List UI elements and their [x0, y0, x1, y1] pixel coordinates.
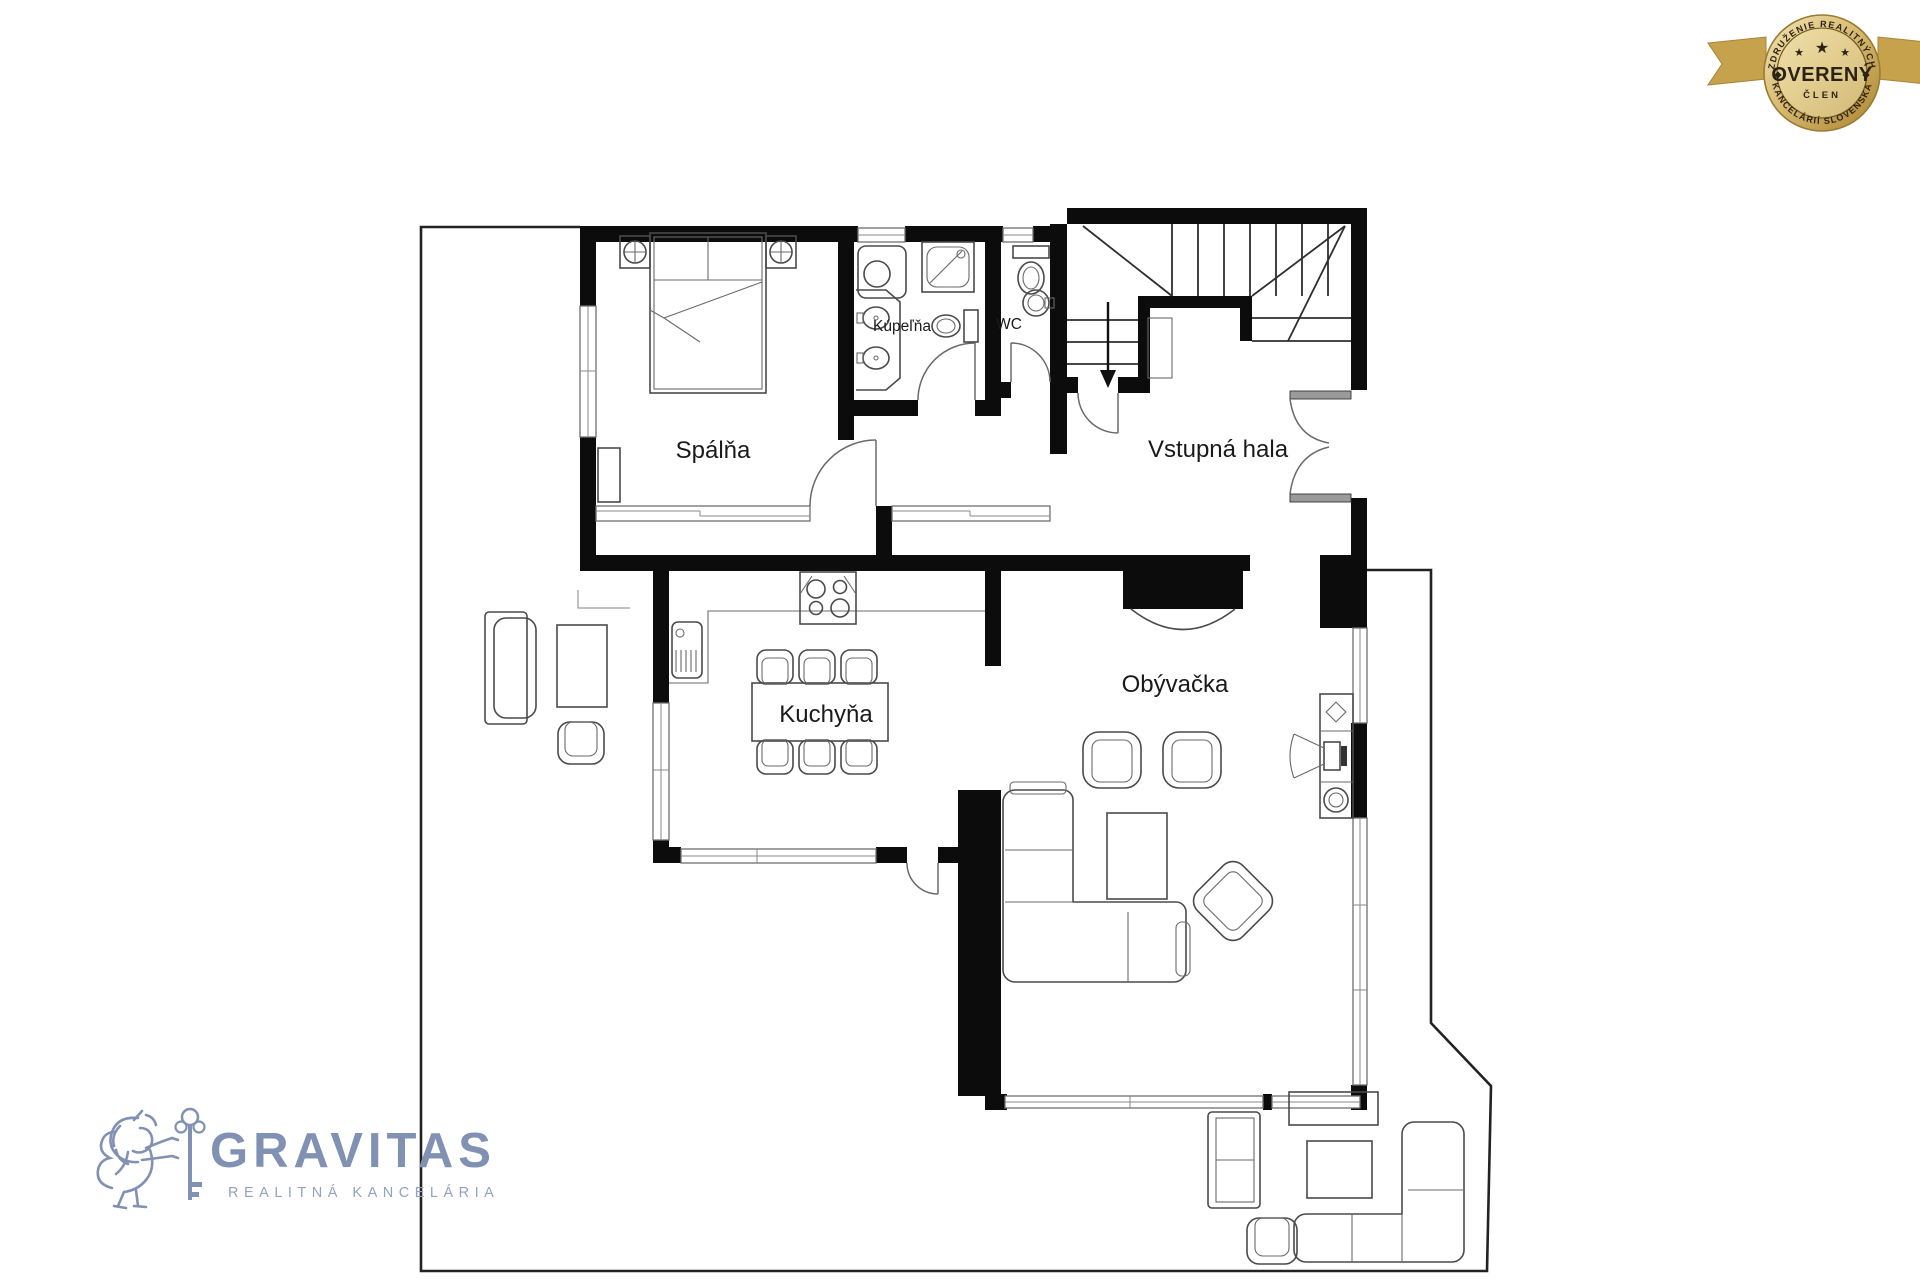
tv: [1290, 734, 1347, 778]
vanity-double-sink: [856, 290, 900, 390]
fireplace-hearth: [1131, 609, 1235, 630]
bedroom-window: [580, 306, 596, 437]
shower: [922, 242, 974, 292]
lion-icon: [98, 1111, 178, 1208]
stair-treads: [1067, 224, 1351, 364]
terrace-corner-sofa: [1294, 1122, 1464, 1262]
bedroom-door: [810, 440, 876, 506]
kitchen-sink: [672, 622, 702, 678]
badge-subtitle: ČLEN: [1803, 89, 1841, 101]
gravitas-logo: GRAVITAS REALITNÁ KANCELÁRIA: [98, 1109, 500, 1208]
kitchen-terrace-door: [907, 863, 938, 894]
wc-window: [1003, 228, 1033, 242]
svg-text:★: ★: [1794, 47, 1804, 59]
logo-brand-text: GRAVITAS: [210, 1124, 496, 1178]
bedroom-cabinet: [598, 448, 620, 502]
bathroom-window: [858, 228, 905, 242]
floor-plan-canvas: Spálňa Kúpeľňa WC Vstupná hala Kuchyňa O…: [0, 0, 1920, 1280]
room-labels: Spálňa Kúpeľňa WC Vstupná hala Kuchyňa O…: [676, 316, 1289, 728]
stove: [800, 572, 856, 624]
plant: [1324, 788, 1348, 812]
key-icon: [176, 1109, 205, 1200]
armchair-1: [1083, 732, 1141, 788]
room-label-spalna: Spálňa: [676, 437, 751, 464]
wc-sink: [1023, 290, 1054, 316]
terrace-furniture-south: [1208, 1092, 1464, 1264]
wardrobe-band-hall: [892, 506, 1050, 521]
badge-title: OVERENÝ: [1771, 62, 1872, 86]
terrace-table-south: [1307, 1141, 1372, 1198]
stair-landing: [1148, 318, 1172, 378]
room-label-kupelna: Kúpeľňa: [873, 318, 931, 335]
wc-fixtures: [1013, 246, 1054, 316]
bathroom-fixtures: [856, 242, 978, 390]
stair-diagonals: [1083, 226, 1345, 341]
terrace-table-west: [557, 625, 607, 707]
bed: [650, 233, 766, 393]
doors: [810, 343, 1351, 894]
badge-ribbon-right: [1878, 37, 1920, 85]
room-label-vstupna-hala: Vstupná hala: [1148, 436, 1289, 463]
terrace-sofa-west: [485, 612, 536, 724]
living-right-window-lower: [1353, 818, 1367, 1085]
kitchen-bottom-window: [681, 849, 876, 863]
corner-sofa: [1003, 782, 1190, 982]
badge-ribbon-left: [1708, 37, 1766, 85]
svg-text:★: ★: [1840, 47, 1850, 59]
living-bottom-window: [1005, 1096, 1263, 1108]
room-label-wc: WC: [996, 316, 1022, 333]
terrace-armchair-south: [1247, 1218, 1297, 1264]
wc-toilet: [1013, 246, 1049, 294]
bathroom-door: [918, 343, 975, 400]
terrace-sofa-south: [1208, 1112, 1260, 1208]
bathroom-toilet: [932, 310, 978, 342]
tv-cabinet: [1290, 694, 1353, 818]
entrance-double-door: [1290, 391, 1351, 502]
certification-badge: ★ ★ ★ OVERENÝ ČLEN ZDRUŽENIE REALITNÝCH …: [1708, 15, 1920, 131]
kitchen-counter: [669, 611, 985, 683]
living-room-furniture: [1003, 609, 1353, 982]
staircase-door: [1078, 393, 1118, 433]
room-label-kuchyna: Kuchyňa: [779, 701, 873, 728]
logo-tagline-text: REALITNÁ KANCELÁRIA: [228, 1184, 499, 1201]
wardrobe-band-bedroom: [596, 506, 810, 521]
armchair-2: [1163, 732, 1221, 788]
stair-direction-arrow: [1100, 302, 1116, 388]
decor-diamond: [1326, 702, 1346, 722]
wc-door: [1011, 343, 1050, 382]
diamond-armchair: [1188, 856, 1279, 947]
living-right-window-upper: [1353, 628, 1367, 723]
terrace-chair-west: [558, 722, 604, 764]
room-label-obyvacka: Obývačka: [1122, 671, 1229, 698]
terrace-furniture-west: [485, 612, 607, 764]
svg-text:★: ★: [1815, 40, 1829, 57]
coffee-table: [1107, 813, 1167, 899]
kitchen-side-window: [653, 703, 669, 840]
floor-plan-page: Spálňa Kúpeľňa WC Vstupná hala Kuchyňa O…: [0, 0, 1920, 1280]
kitchen-furniture: [669, 572, 985, 774]
living-bottom-window-2: [1272, 1096, 1360, 1108]
